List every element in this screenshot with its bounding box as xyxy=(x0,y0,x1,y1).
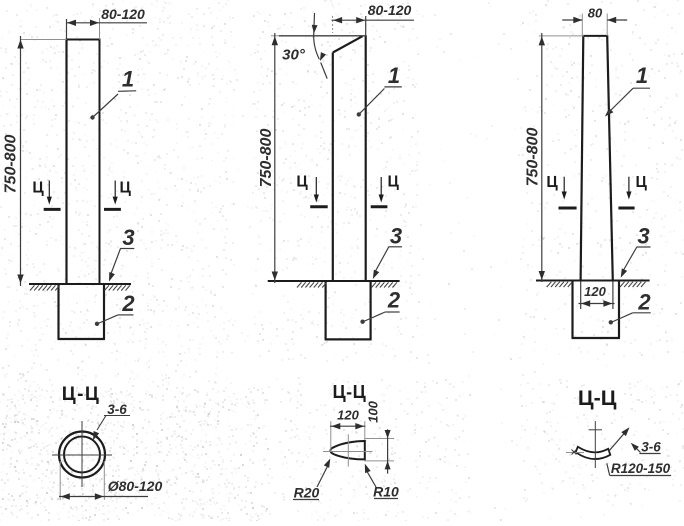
svg-text:30°: 30° xyxy=(282,47,306,64)
svg-text:Ц: Ц xyxy=(546,174,558,191)
svg-text:1: 1 xyxy=(388,63,400,88)
svg-text:80-120: 80-120 xyxy=(101,6,145,22)
svg-text:80-120: 80-120 xyxy=(368,2,412,18)
svg-text:2: 2 xyxy=(637,290,651,315)
svg-text:3-6: 3-6 xyxy=(641,440,661,455)
svg-text:Ц: Ц xyxy=(32,180,44,197)
svg-text:120: 120 xyxy=(337,408,359,423)
svg-text:2: 2 xyxy=(121,291,135,316)
svg-text:R120-150: R120-150 xyxy=(611,461,671,476)
svg-text:120: 120 xyxy=(584,284,606,299)
svg-text:Ц-Ц: Ц-Ц xyxy=(62,384,101,405)
svg-text:Ц: Ц xyxy=(120,180,132,197)
svg-text:R20: R20 xyxy=(294,485,320,501)
svg-text:3: 3 xyxy=(637,224,649,249)
svg-text:750-800: 750-800 xyxy=(524,128,541,187)
svg-text:750-800: 750-800 xyxy=(258,129,275,188)
svg-text:R10: R10 xyxy=(373,484,399,500)
svg-text:Ц: Ц xyxy=(388,174,400,191)
svg-text:1: 1 xyxy=(636,63,648,88)
svg-text:Ц: Ц xyxy=(296,174,308,191)
svg-text:Ц: Ц xyxy=(636,174,648,191)
svg-text:3: 3 xyxy=(122,225,134,250)
svg-text:Ц-Ц: Ц-Ц xyxy=(578,386,617,410)
svg-text:750-800: 750-800 xyxy=(2,135,19,194)
svg-text:3-6: 3-6 xyxy=(107,402,127,417)
svg-text:100: 100 xyxy=(366,400,381,422)
svg-text:80: 80 xyxy=(588,6,603,21)
svg-text:Ø80-120: Ø80-120 xyxy=(108,478,163,494)
svg-text:Ц-Ц: Ц-Ц xyxy=(333,382,367,402)
svg-text:1: 1 xyxy=(122,67,134,92)
svg-text:2: 2 xyxy=(387,288,401,313)
svg-text:3: 3 xyxy=(390,224,402,249)
